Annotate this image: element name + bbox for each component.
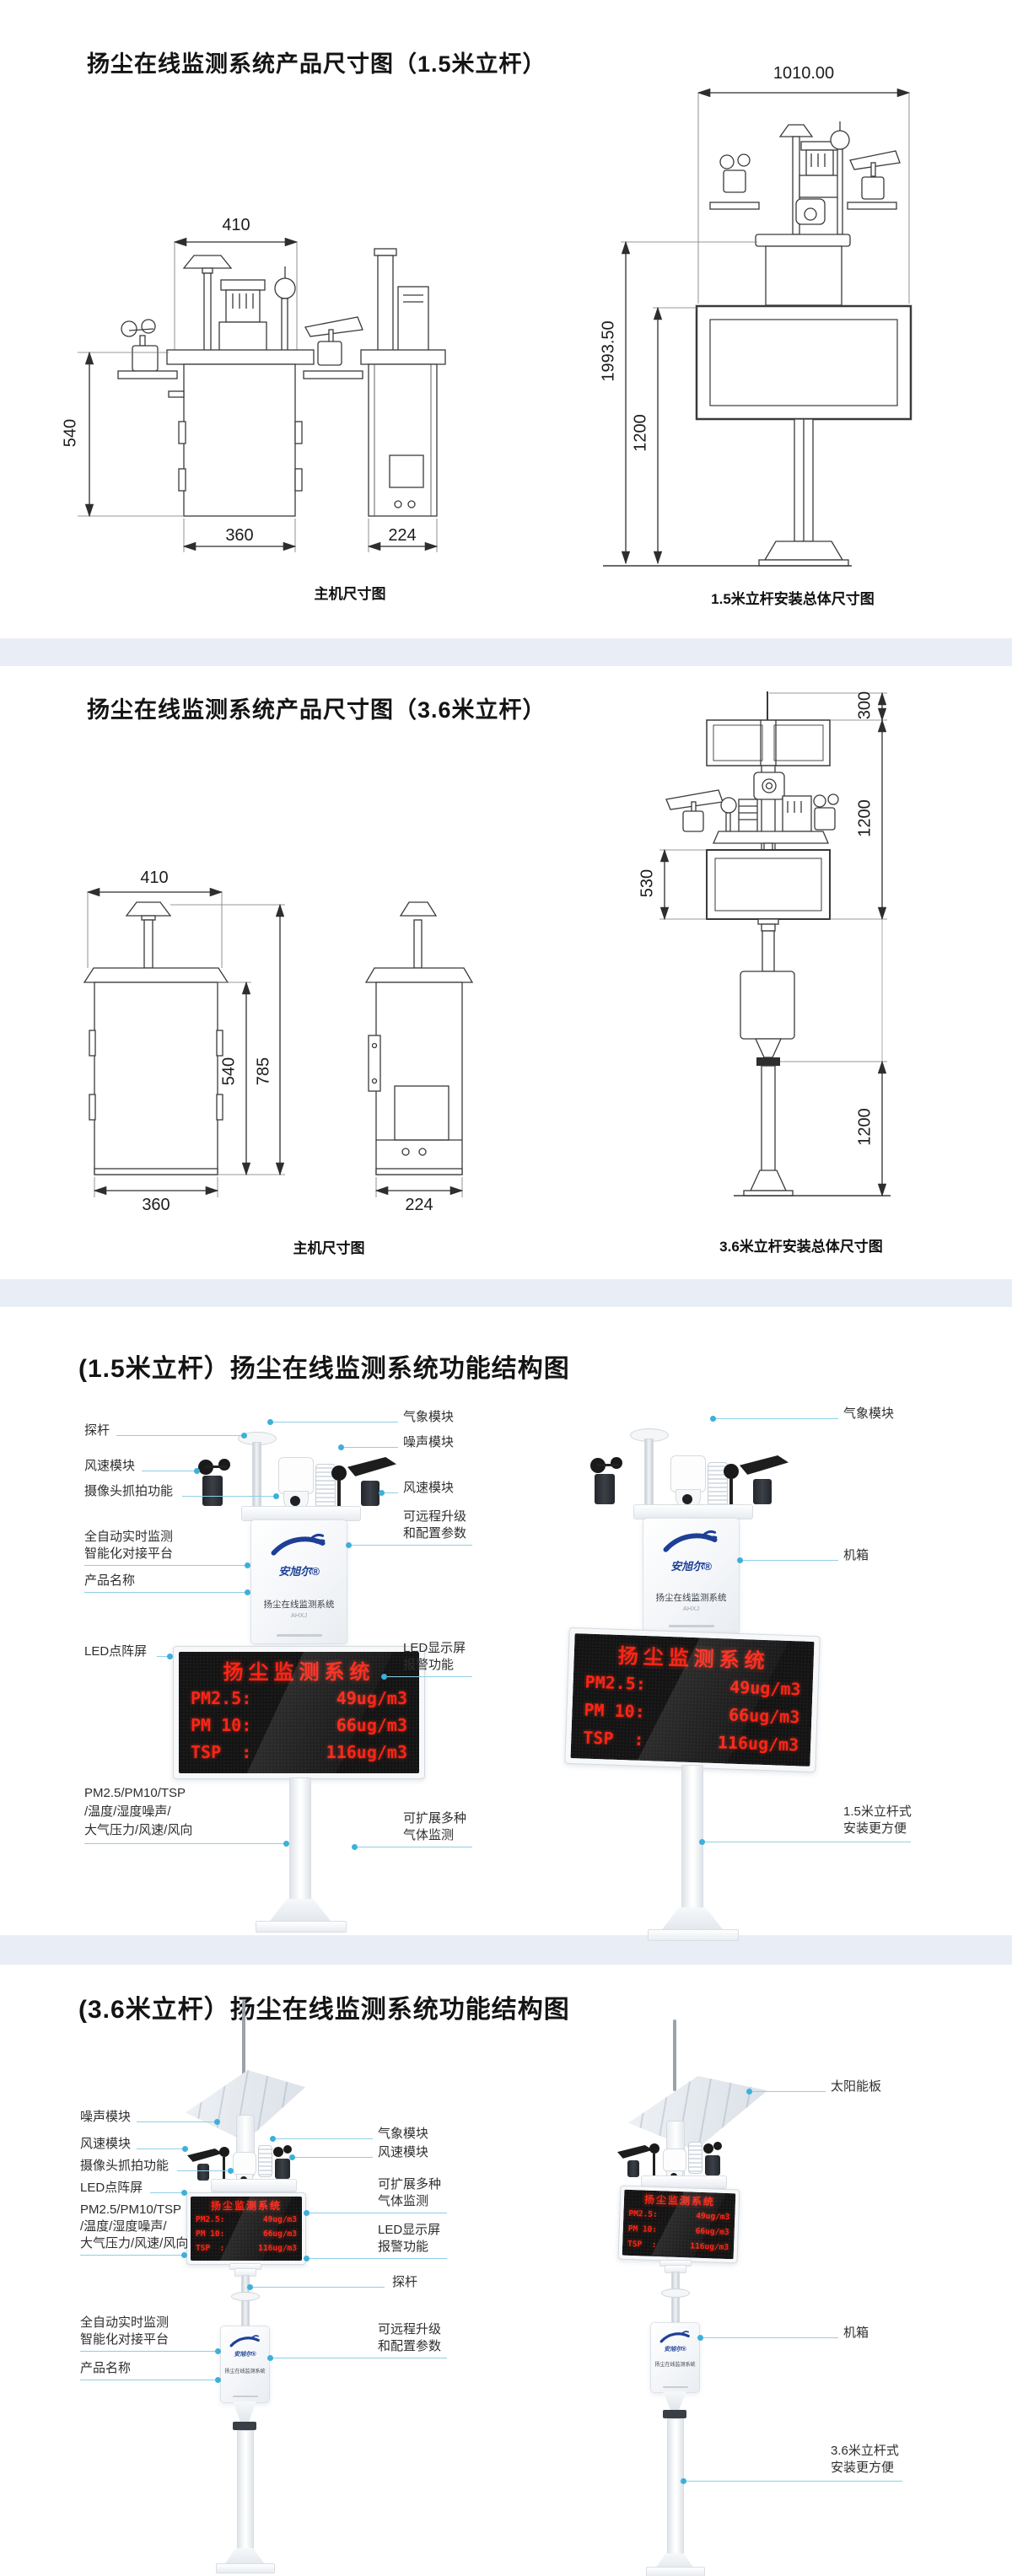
- s1-overall-view-drawing: [603, 93, 911, 566]
- callout-dot: [247, 2284, 253, 2290]
- wind-vane-base: [753, 1479, 772, 1504]
- callout-dot: [182, 2146, 188, 2152]
- cabinet-funnel: [663, 2391, 686, 2410]
- callout-line: [270, 2358, 447, 2358]
- brand-logo: [229, 2334, 262, 2349]
- wind-speed-sensor: [202, 1476, 223, 1506]
- s1-side-view-drawing: [361, 249, 445, 552]
- brand-name: 安旭尔®: [651, 2345, 699, 2353]
- callout-dot: [241, 1433, 247, 1439]
- callout-dot: [194, 1468, 200, 1474]
- probe-stem: [241, 2275, 250, 2329]
- dim-540: 540: [220, 1034, 240, 1110]
- wind-vane: [617, 2145, 653, 2160]
- callout-dot: [746, 2089, 752, 2095]
- label-gas-monitor: 气体监测: [378, 2194, 428, 2209]
- callout-line: [137, 2122, 218, 2122]
- label-pm-params: /温度/湿度噪声/: [80, 2219, 167, 2235]
- product-name-text: 扬尘在线监测系统: [651, 2360, 699, 2368]
- label-gas-monitor: 气体监测: [403, 1828, 454, 1843]
- label-gas-expand: 可扩展多种: [378, 2177, 441, 2192]
- callout-line: [272, 2138, 373, 2139]
- dim-1200: 1200: [632, 395, 651, 471]
- anemometer-cup-icon: [283, 2145, 292, 2154]
- wind-vane: [347, 1457, 396, 1479]
- label-alarm: 报警功能: [403, 1658, 454, 1673]
- anemometer-cup-icon: [611, 1457, 622, 1469]
- wind-vane: [740, 1455, 789, 1477]
- mounting-pole: [667, 2418, 684, 2555]
- company-text-bar: [277, 1634, 322, 1637]
- product-name-text: 扬尘在线监测系统: [251, 1598, 347, 1611]
- s2-side-view-drawing: [366, 902, 472, 1197]
- label-pm-params: 大气压力/风速/风向: [84, 1823, 192, 1838]
- brand-name: 安旭尔®: [251, 1562, 347, 1578]
- anemometer-bar: [597, 1464, 619, 1466]
- callout-line: [84, 1592, 248, 1593]
- brand-name: 安旭尔®: [221, 2350, 269, 2358]
- s1-front-view-drawing: [78, 242, 363, 552]
- label-auto-monitor: 全自动实时监测: [80, 2315, 169, 2331]
- label-gas-expand: 可扩展多种: [403, 1811, 466, 1826]
- brand-logo: [660, 1529, 723, 1556]
- callout-dot: [338, 1444, 344, 1450]
- noise-sensor: [649, 2143, 659, 2154]
- probe-cap: [661, 2288, 690, 2298]
- label-weather-module: 气象模块: [403, 1410, 454, 1425]
- led-display: 扬尘监测系统 PM2.5:49ug/m3 PM 10:66ug/m3 TSP :…: [618, 2186, 740, 2264]
- callout-dot: [304, 2210, 310, 2216]
- callout-dot: [245, 1589, 250, 1595]
- anemometer-cup-icon: [703, 2143, 713, 2154]
- callout-line: [292, 2157, 373, 2158]
- weather-sensor: [688, 2142, 702, 2174]
- label-remote-config: 和配置参数: [403, 1526, 466, 1541]
- label-led-display: LED显示屏: [378, 2223, 440, 2238]
- probe-cap: [231, 2292, 260, 2301]
- mounting-pole: [237, 2430, 254, 2550]
- brand-logo: [659, 2330, 692, 2345]
- callout-line: [270, 1422, 398, 1422]
- callout-dot: [267, 2355, 273, 2361]
- callout-line: [384, 1676, 472, 1677]
- label-smart-platform: 智能化对接平台: [84, 1546, 173, 1562]
- base-plate: [646, 2567, 705, 2576]
- callout-dot: [381, 1674, 387, 1680]
- probe-stem: [644, 1439, 654, 1508]
- callout-dot: [379, 1490, 385, 1496]
- label-pm-params: /温度/湿度噪声/: [84, 1804, 171, 1820]
- dim-224: 224: [369, 526, 436, 546]
- label-camera: 摄像头抓拍功能: [84, 1484, 173, 1499]
- dim-1010: 1010.00: [753, 64, 854, 83]
- led-screen: 扬尘监测系统 PM2.5:49ug/m3 PM 10:66ug/m3 TSP :…: [179, 1652, 419, 1773]
- anemometer-cup-icon: [218, 1459, 230, 1471]
- callout-dot: [699, 1839, 705, 1845]
- label-cabinet: 机箱: [843, 2326, 869, 2341]
- label-alarm: 报警功能: [378, 2240, 428, 2255]
- dim-785: 785: [255, 1034, 274, 1110]
- callout-dot: [167, 1654, 173, 1659]
- noise-sensor: [724, 1464, 739, 1479]
- callout-line: [354, 1847, 472, 1847]
- callout-dot: [215, 2377, 221, 2383]
- section4-title: (3.6米立杆）扬尘在线监测系统功能结构图: [78, 1988, 570, 2025]
- label-easy-install: 安装更方便: [831, 2460, 894, 2476]
- section3-title: (1.5米立杆）扬尘在线监测系统功能结构图: [78, 1347, 570, 1385]
- dim-530: 530: [638, 846, 658, 922]
- equipment-cabinet: 安旭尔® 扬尘在线监测系统 AHXJ: [643, 1518, 740, 1634]
- product-model-text: AHXJ: [643, 1605, 739, 1612]
- brand-name: 安旭尔®: [643, 1557, 739, 1573]
- led-screen: 扬尘监测系统 PM2.5:49ug/m3 PM 10:66ug/m3 TSP :…: [622, 2190, 736, 2260]
- noise-sensor-stem: [337, 1481, 341, 1508]
- callout-line: [306, 2213, 447, 2213]
- weather-sensor: [258, 2145, 272, 2177]
- callout-dot: [304, 2256, 310, 2261]
- company-text-bar: [663, 2386, 688, 2388]
- company-text-bar: [233, 2396, 258, 2397]
- label-weather-module: 气象模块: [378, 2127, 428, 2142]
- label-camera: 摄像头抓拍功能: [80, 2159, 169, 2174]
- wind-speed-sensor: [275, 2159, 290, 2179]
- callout-line: [177, 2170, 231, 2171]
- callout-dot: [215, 2348, 221, 2354]
- callout-line: [700, 2337, 838, 2338]
- equipment-cabinet: 安旭尔® 扬尘在线监测系统: [220, 2326, 270, 2403]
- camera-lens-icon: [290, 1496, 300, 1506]
- callout-line: [702, 1842, 911, 1842]
- s1-main-caption: 主机尺寸图: [266, 582, 434, 603]
- label-pm-params: PM2.5/PM10/TSP: [80, 2202, 181, 2218]
- label-cabinet: 机箱: [843, 1548, 869, 1563]
- dim-224: 224: [385, 1196, 453, 1215]
- anemometer-bar: [205, 1465, 227, 1468]
- callout-line: [80, 2380, 218, 2380]
- screen-sheen: [179, 1652, 419, 1773]
- brand-logo: [268, 1532, 331, 1559]
- product-spec-page: 扬尘在线监测系统产品尺寸图（1.5米立杆） 扬尘在线监测系统产品尺寸图（3.6米…: [0, 0, 1012, 2576]
- wind-speed-sensor: [705, 2155, 720, 2175]
- wind-vane: [187, 2148, 223, 2164]
- wind-vane-base: [361, 1481, 379, 1506]
- label-pm-params: PM2.5/PM10/TSP: [84, 1786, 186, 1801]
- dim-410: 410: [202, 216, 270, 235]
- callout-line: [84, 1843, 287, 1844]
- callout-line: [740, 1560, 838, 1561]
- s2-overall-caption: 3.6米立杆安装总体尺寸图: [675, 1234, 928, 1256]
- base-plate: [648, 1929, 739, 1941]
- callout-dot: [681, 2478, 686, 2484]
- callout-line: [341, 1447, 398, 1448]
- label-pole-mount: 3.6米立杆式: [831, 2444, 899, 2459]
- pole-clamp: [233, 2422, 256, 2430]
- callout-line: [182, 1496, 277, 1497]
- product-model-text: AHXJ: [251, 1611, 347, 1619]
- anemometer-cup-icon: [713, 2142, 722, 2150]
- noise-sensor-stem: [729, 1479, 733, 1506]
- screen-sheen: [571, 1633, 815, 1767]
- label-pole-mount: 1.5米立杆式: [843, 1804, 912, 1820]
- callout-dot: [181, 2190, 187, 2196]
- callout-line: [142, 1471, 197, 1471]
- callout-line: [306, 2258, 447, 2259]
- callout-dot: [181, 2252, 187, 2258]
- label-noise-module: 噪声模块: [403, 1435, 454, 1450]
- probe-stem: [671, 2272, 680, 2326]
- label-wind-speed-2: 风速模块: [403, 1481, 454, 1496]
- antenna-rod: [673, 2019, 676, 2091]
- noise-sensor: [219, 2147, 229, 2157]
- camera-lens-icon: [682, 1494, 692, 1504]
- label-remote-upgrade: 可远程升级: [403, 1509, 466, 1525]
- callout-dot: [697, 2335, 703, 2341]
- callout-dot: [267, 1419, 273, 1425]
- dim-540: 540: [62, 395, 81, 471]
- wind-vane-base: [197, 2164, 209, 2181]
- callout-dot: [214, 2119, 220, 2125]
- callout-dot: [245, 1562, 250, 1568]
- noise-sensor-stem: [223, 2157, 225, 2179]
- ptz-camera: [278, 1457, 314, 1494]
- screen-sheen: [622, 2190, 736, 2260]
- product-name-text: 扬尘在线监测系统: [643, 1591, 739, 1604]
- pole-clamp: [663, 2410, 686, 2418]
- dim-1993: 1993.50: [600, 314, 619, 390]
- label-probe: 探杆: [84, 1423, 110, 1439]
- callout-line: [84, 1565, 248, 1566]
- dim-360: 360: [122, 1196, 190, 1215]
- base-plate: [256, 1921, 347, 1933]
- callout-line: [116, 1435, 245, 1436]
- callout-line: [80, 2255, 185, 2256]
- label-probe: 探杆: [392, 2275, 417, 2290]
- company-text-bar: [669, 1625, 714, 1627]
- callout-dot: [283, 1841, 289, 1847]
- ptz-camera: [663, 2148, 686, 2172]
- s2-main-caption: 主机尺寸图: [245, 1236, 413, 1257]
- label-led-matrix: LED点阵屏: [84, 1644, 147, 1659]
- probe-stem: [252, 1442, 261, 1511]
- wind-speed-sensor: [595, 1474, 615, 1504]
- mounting-pole: [289, 1777, 311, 1902]
- callout-line: [749, 2091, 826, 2092]
- callout-dot: [270, 2136, 276, 2142]
- screen-sheen: [191, 2197, 302, 2261]
- label-remote-config: 和配置参数: [378, 2339, 441, 2354]
- callout-line: [713, 1418, 838, 1419]
- callout-dot: [352, 1844, 358, 1850]
- callout-line: [250, 2287, 385, 2288]
- callout-dot: [710, 1416, 716, 1422]
- dim-410: 410: [121, 869, 188, 888]
- antenna-rod: [242, 2000, 245, 2084]
- equipment-cabinet: 安旭尔® 扬尘在线监测系统 AHXJ: [250, 1519, 347, 1644]
- callout-dot: [273, 1493, 279, 1499]
- label-led-display: LED显示屏: [403, 1641, 466, 1656]
- dim-1200-upper: 1200: [856, 781, 875, 857]
- callout-line: [348, 1545, 472, 1546]
- callout-line: [150, 2192, 185, 2193]
- callout-line: [381, 1492, 398, 1493]
- label-led-matrix: LED点阵屏: [80, 2181, 143, 2196]
- product-name-text: 扬尘在线监测系统: [221, 2367, 269, 2374]
- led-display: 扬尘监测系统 PM2.5:49ug/m3 PM 10:66ug/m3 TSP :…: [186, 2192, 306, 2265]
- equipment-cabinet: 安旭尔® 扬尘在线监测系统: [650, 2322, 700, 2393]
- wind-vane-base: [627, 2160, 639, 2177]
- noise-sensor: [331, 1465, 347, 1481]
- led-screen: 扬尘监测系统 PM2.5:49ug/m3 PM 10:66ug/m3 TSP :…: [571, 1633, 815, 1767]
- label-product-name: 产品名称: [80, 2361, 131, 2376]
- label-auto-monitor: 全自动实时监测: [84, 1530, 173, 1545]
- callout-dot: [228, 2168, 234, 2174]
- label-product-name: 产品名称: [84, 1573, 135, 1589]
- led-display: 扬尘监测系统 PM2.5:49ug/m3 PM 10:66ug/m3 TSP :…: [173, 1646, 425, 1779]
- dim-1200-lower: 1200: [856, 1089, 875, 1165]
- callout-dot: [346, 1542, 352, 1548]
- ptz-camera: [233, 2152, 256, 2175]
- dim-300: 300: [856, 668, 875, 744]
- callout-dot: [289, 2154, 295, 2160]
- callout-line: [80, 2351, 218, 2352]
- label-wind-speed: 风速模块: [84, 1459, 135, 1474]
- cabinet-funnel: [233, 2401, 256, 2422]
- led-display: 扬尘监测系统 PM2.5:49ug/m3 PM 10:66ug/m3 TSP :…: [564, 1627, 820, 1772]
- label-wind-speed: 风速模块: [80, 2137, 131, 2152]
- label-easy-install: 安装更方便: [843, 1821, 907, 1837]
- callout-dot: [737, 1557, 743, 1563]
- callout-line: [683, 2481, 902, 2482]
- label-remote-upgrade: 可远程升级: [378, 2322, 441, 2337]
- label-wind-speed-2: 风速模块: [378, 2145, 428, 2160]
- mounting-pole: [681, 1765, 703, 1910]
- label-pm-params: 大气压力/风速/风向: [80, 2236, 188, 2251]
- ptz-camera: [670, 1455, 706, 1492]
- noise-sensor-stem: [653, 2154, 655, 2175]
- callout-line: [137, 2148, 186, 2149]
- anemometer-cup-icon: [273, 2147, 283, 2157]
- label-noise-module: 噪声模块: [80, 2110, 131, 2125]
- callout-line: [157, 1656, 170, 1657]
- section-divider: [0, 1935, 1012, 1965]
- label-solar-panel: 太阳能板: [831, 2079, 881, 2095]
- base-plate: [216, 2563, 275, 2573]
- s1-overall-caption: 1.5米立杆安装总体尺寸图: [666, 587, 919, 608]
- dim-360: 360: [206, 526, 273, 546]
- label-smart-platform: 智能化对接平台: [80, 2332, 169, 2347]
- label-weather-module: 气象模块: [843, 1406, 894, 1422]
- sensor-tray: [211, 2179, 297, 2192]
- led-screen: 扬尘监测系统 PM2.5:49ug/m3 PM 10:66ug/m3 TSP :…: [191, 2197, 302, 2261]
